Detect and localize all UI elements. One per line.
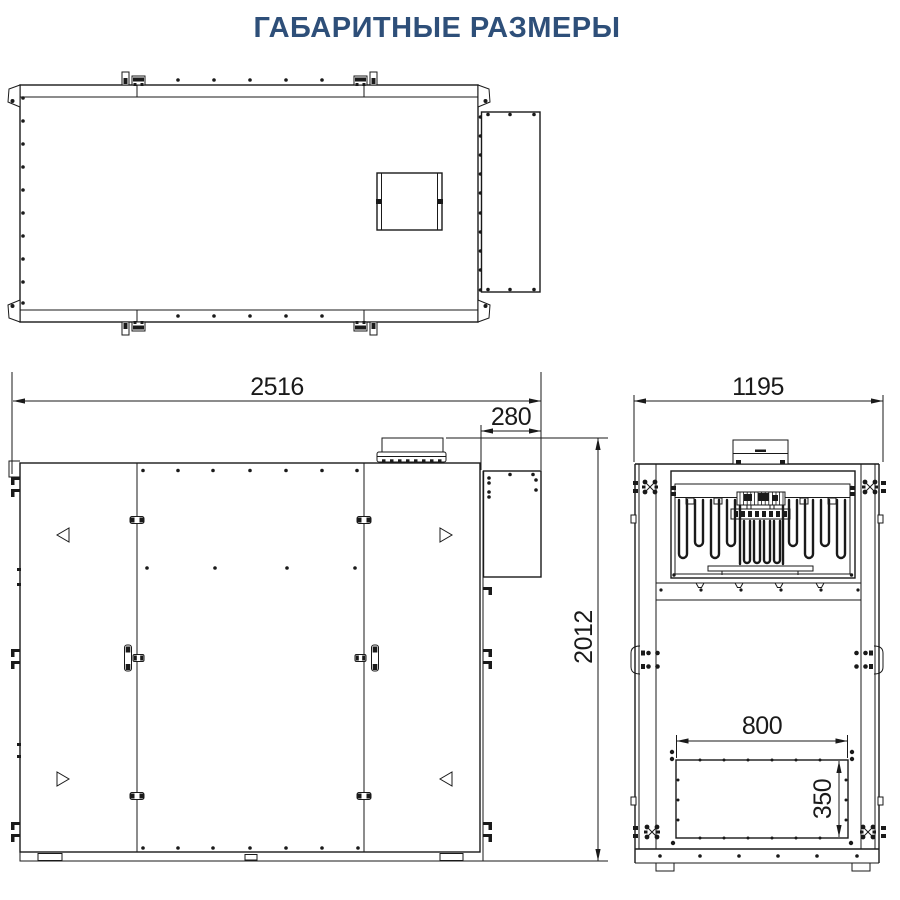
duct-box-front: [484, 471, 542, 577]
foot: [656, 863, 870, 871]
dimension-opening-height-label: 350: [809, 779, 837, 819]
roof-duct: [377, 438, 446, 462]
service-hatch: [376, 173, 443, 230]
dimension-overall-width-label: 2516: [250, 373, 304, 401]
dimension-overall-height-label: 2012: [570, 610, 598, 664]
base-frame: [20, 852, 483, 861]
drawing-canvas: ГАБАРИТНЫЕ РАЗМЕРЫ: [0, 0, 900, 900]
roof-duct-side: [733, 440, 788, 464]
dimension-overall-width: 2516: [12, 372, 541, 474]
dimension-opening-width-label: 800: [742, 712, 782, 740]
duct-box-plan: [482, 112, 541, 292]
dimensional-drawing: 2516 280 2012 1195 800: [0, 0, 900, 900]
top-view: [8, 72, 540, 335]
dimension-duct-depth: 280: [481, 403, 541, 470]
front-view: [9, 438, 541, 861]
dimension-overall-depth-label: 1195: [732, 373, 784, 401]
side-view: [631, 440, 886, 871]
dimension-duct-depth-label: 280: [491, 403, 531, 431]
heat-exchanger-section: [671, 471, 855, 578]
